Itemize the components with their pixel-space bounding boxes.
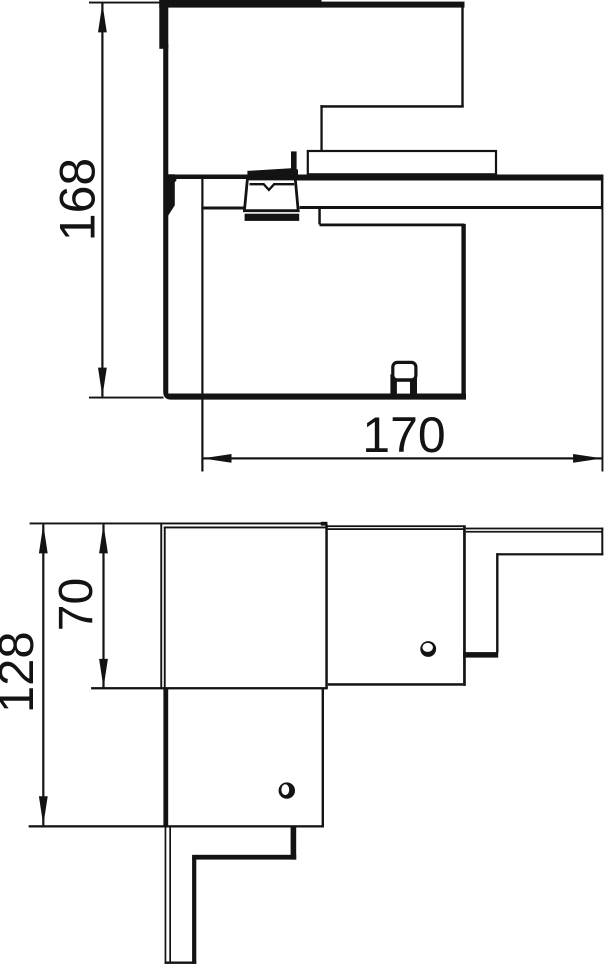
svg-text:128: 128 [0, 631, 44, 713]
svg-text:170: 170 [362, 407, 445, 463]
svg-text:70: 70 [50, 578, 103, 631]
svg-text:168: 168 [50, 158, 106, 241]
